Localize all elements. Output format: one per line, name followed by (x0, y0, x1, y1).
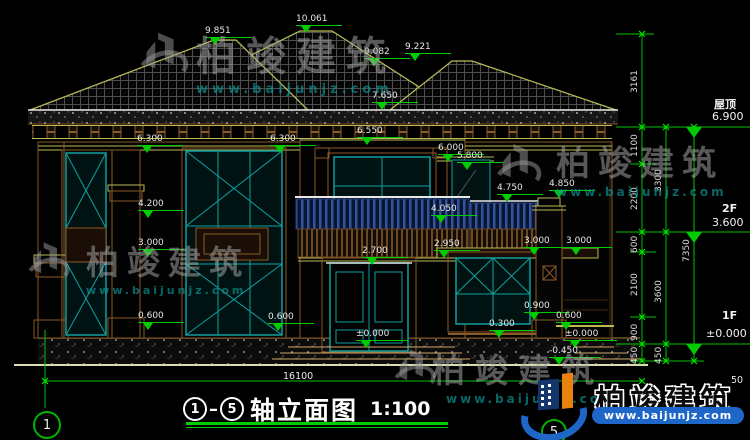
chain-dim: 450 (654, 347, 664, 364)
chain-dim: 450 (630, 347, 640, 364)
level-triangle-1f (686, 344, 702, 355)
watermark-right: 柏竣建筑 www.baijunjz.com (556, 136, 727, 199)
level-value-roof: 6.900 (712, 110, 744, 123)
elev-marker: 6.550 (357, 126, 403, 138)
watermark-site: www.baijunjz.com (86, 284, 250, 297)
level-value-2f: 3.600 (712, 216, 744, 229)
chain-dim: 7350 (682, 239, 692, 262)
elev-marker: 0.300 (489, 319, 535, 331)
elev-marker: 6.300 (137, 134, 183, 146)
title-axis-from-number: 1 (190, 402, 199, 417)
title-underline-thick (186, 422, 448, 425)
brand-logo-url-text: www.baijunjz.com (604, 409, 732, 422)
elev-marker: 9.221 (405, 42, 451, 54)
elev-marker: 2.950 (434, 239, 480, 251)
overall-width-dim: 16100 (283, 371, 313, 382)
chain-dim: 900 (630, 324, 640, 341)
elev-marker: 5.800 (457, 151, 503, 163)
elev-marker: 0.600 (138, 311, 184, 323)
watermark-brand: 柏竣建筑 (86, 236, 250, 284)
title-dash: – (209, 399, 218, 420)
elev-marker: 3.000 (566, 236, 612, 248)
axis-bubble-1-number: 1 (43, 418, 51, 433)
elev-marker: 0.600 (268, 312, 314, 324)
chain-dim: 3600 (654, 280, 664, 303)
elev-marker: 4.050 (431, 204, 477, 216)
brand-logo-mark (513, 370, 593, 440)
watermark-brand: 柏竣建筑 (196, 24, 396, 82)
chain-dim: 3161 (630, 70, 640, 93)
elev-marker: ±0.000 (356, 329, 408, 341)
title-axis-to: 5 (220, 397, 244, 421)
watermark-site: www.baijunjz.com (196, 82, 396, 97)
watermark-site: www.baijunjz.com (556, 185, 727, 199)
brand-logo-url: www.baijunjz.com (592, 407, 744, 424)
level-label-2f: 2F (722, 202, 737, 215)
level-label-1f: 1F (722, 309, 737, 322)
cad-elevation-screenshot: 9.851 10.061 9.082 9.221 7.650 6.300 6.3… (0, 0, 750, 440)
elev-marker: ±0.000 (565, 329, 617, 341)
elev-marker: 2.700 (362, 246, 408, 258)
watermark-left: 柏竣建筑 www.baijunjz.com (86, 236, 250, 297)
elev-marker: 6.300 (270, 134, 316, 146)
title-axis-to-number: 5 (227, 402, 236, 417)
title-axis-from: 1 (183, 397, 207, 421)
chain-dim: 600 (630, 236, 640, 253)
elev-marker: 3.000 (524, 236, 570, 248)
elev-marker: 4.200 (138, 199, 184, 211)
chain-dim: 2100 (630, 273, 640, 296)
title-scale: 1:100 (370, 398, 430, 420)
watermark-top: 柏竣建筑 www.baijunjz.com (196, 24, 396, 97)
eave-band (28, 110, 618, 139)
brand-logo (513, 370, 593, 440)
watermark-brand: 柏竣建筑 (556, 136, 727, 185)
level-value-1f: ±0.000 (706, 327, 747, 340)
axis-bubble-1: 1 (33, 411, 61, 439)
title-underline-thin (186, 427, 448, 428)
elev-marker: 0.600 (556, 311, 602, 323)
elev-marker: 4.750 (497, 183, 543, 195)
